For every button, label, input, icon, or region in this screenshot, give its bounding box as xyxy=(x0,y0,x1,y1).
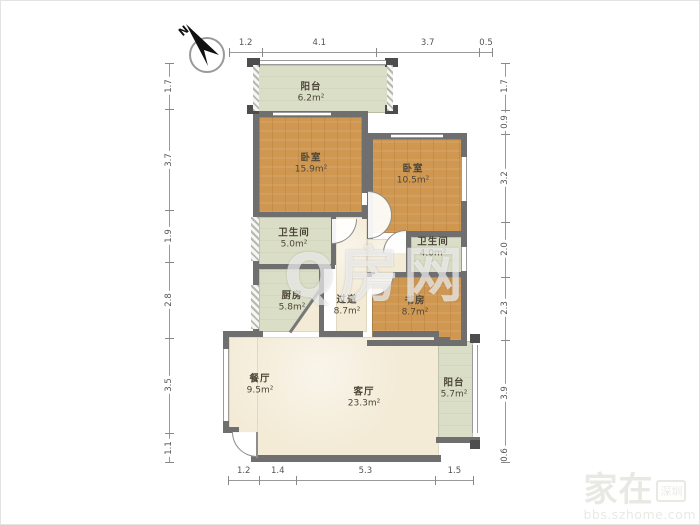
watermark-main-text: 家在 xyxy=(583,474,653,506)
dim-segment: 0.9 xyxy=(497,110,513,135)
dim-segment: 1.1 xyxy=(161,433,177,463)
dim-segment: 1.2 xyxy=(229,41,262,57)
room-name: 卧室 xyxy=(402,163,423,175)
door-leaf xyxy=(256,432,258,458)
hatched-wall xyxy=(251,285,259,329)
window xyxy=(223,349,229,421)
dimension-line-top: 1.2 4.1 3.7 0.5 xyxy=(229,41,493,57)
hatched-wall xyxy=(251,217,259,261)
north-compass-icon: N xyxy=(177,19,233,81)
room-label-bedroom-left: 卧室 15.9m² xyxy=(295,152,327,175)
dim-label: 3.9 xyxy=(500,384,510,402)
wall xyxy=(251,455,441,462)
room-area: 23.3m² xyxy=(348,398,380,409)
window xyxy=(391,134,443,138)
room-area: 10.5m² xyxy=(397,175,429,186)
dim-label: 1.7 xyxy=(500,78,510,96)
watermark-szhome: 家在 深圳 bbs.szhome.com xyxy=(583,474,696,522)
dim-label: 1.2 xyxy=(239,38,253,48)
dim-segment: 2.8 xyxy=(161,262,177,338)
room-area: 5.7m² xyxy=(441,389,468,400)
dim-segment: 5.3 xyxy=(296,469,435,485)
floorplan-image: N 1.2 4.1 3.7 0.5 1.2 1.4 5.3 1.5 1.7 3.… xyxy=(0,0,700,525)
dimension-line-right: 1.7 0.9 3.2 2.0 2.3 3.9 0.6 xyxy=(497,63,513,463)
dim-segment: 1.4 xyxy=(259,469,296,485)
room-name: 阳台 xyxy=(443,377,464,389)
dim-label: 1.9 xyxy=(164,227,174,245)
dim-label: 0.6 xyxy=(500,446,510,464)
room-label-balcony-right: 阳台 5.7m² xyxy=(441,377,468,400)
dim-label: 4.1 xyxy=(313,38,327,48)
room-label-living: 客厅 23.3m² xyxy=(348,386,380,409)
dim-segment: 2.0 xyxy=(497,222,513,277)
dim-segment: 3.7 xyxy=(376,41,479,57)
window xyxy=(461,157,467,201)
dim-segment: 3.2 xyxy=(497,134,513,222)
dim-label: 0.9 xyxy=(500,113,510,131)
dim-label: 2.8 xyxy=(164,291,174,309)
watermark-site-url: bbs.szhome.com xyxy=(583,507,696,522)
room-area: 15.9m² xyxy=(295,164,327,175)
dimension-line-bottom: 1.2 1.4 5.3 1.5 xyxy=(228,469,474,485)
room-label-balcony-top: 阳台 6.2m² xyxy=(298,81,325,104)
room-label-bedroom-right: 卧室 10.5m² xyxy=(397,163,429,186)
dim-segment: 1.9 xyxy=(161,210,177,262)
dim-segment: 4.1 xyxy=(262,41,376,57)
dimension-line-left: 1.7 3.7 1.9 2.8 3.5 1.1 xyxy=(161,63,177,463)
wall xyxy=(319,331,363,337)
entry-door-arc xyxy=(232,432,257,457)
dim-label: 3.2 xyxy=(500,169,510,187)
dim-segment: 3.7 xyxy=(161,109,177,210)
pillar xyxy=(470,334,480,343)
watermark-badge: 深圳 xyxy=(656,480,686,502)
room-name: 阳台 xyxy=(300,81,321,93)
dim-segment: 3.5 xyxy=(161,338,177,433)
dim-label: 1.4 xyxy=(271,466,285,476)
room-name: 卧室 xyxy=(300,152,321,164)
dim-label: 1.7 xyxy=(164,77,174,95)
dim-segment: 1.2 xyxy=(228,469,259,485)
room-name: 客厅 xyxy=(353,386,374,398)
dim-label: 1.1 xyxy=(164,439,174,457)
room-label-dining: 餐厅 9.5m² xyxy=(247,373,274,396)
wall xyxy=(258,212,363,217)
dim-label: 2.3 xyxy=(500,299,510,317)
wall xyxy=(367,340,467,346)
dim-segment: 2.3 xyxy=(497,277,513,340)
wall xyxy=(373,331,439,337)
window xyxy=(260,60,386,65)
dim-segment: 0.5 xyxy=(479,41,493,57)
room-name: 餐厅 xyxy=(249,373,270,385)
dim-label: 3.5 xyxy=(164,377,174,395)
hatched-wall xyxy=(253,65,259,111)
window xyxy=(273,112,331,116)
pillar xyxy=(470,440,480,449)
dim-label: 1.2 xyxy=(237,466,251,476)
window xyxy=(472,345,478,433)
dim-label: 2.0 xyxy=(500,241,510,259)
dim-label: 1.5 xyxy=(448,466,462,476)
watermark-qfang: Q房网 xyxy=(284,227,467,314)
dim-segment: 0.6 xyxy=(497,447,513,463)
room-area: 9.5m² xyxy=(247,385,274,396)
north-label: N xyxy=(177,23,191,39)
room-area: 6.2m² xyxy=(298,93,325,104)
dim-label: 0.5 xyxy=(479,38,493,48)
dim-label: 3.7 xyxy=(164,151,174,169)
dim-label: 5.3 xyxy=(359,466,373,476)
wall xyxy=(434,337,450,343)
dim-segment: 1.5 xyxy=(435,469,474,485)
dim-segment: 1.7 xyxy=(497,63,513,110)
dim-segment: 3.9 xyxy=(497,340,513,447)
hatched-wall xyxy=(387,65,393,111)
dim-segment: 1.7 xyxy=(161,63,177,109)
dim-label: 3.7 xyxy=(421,38,435,48)
